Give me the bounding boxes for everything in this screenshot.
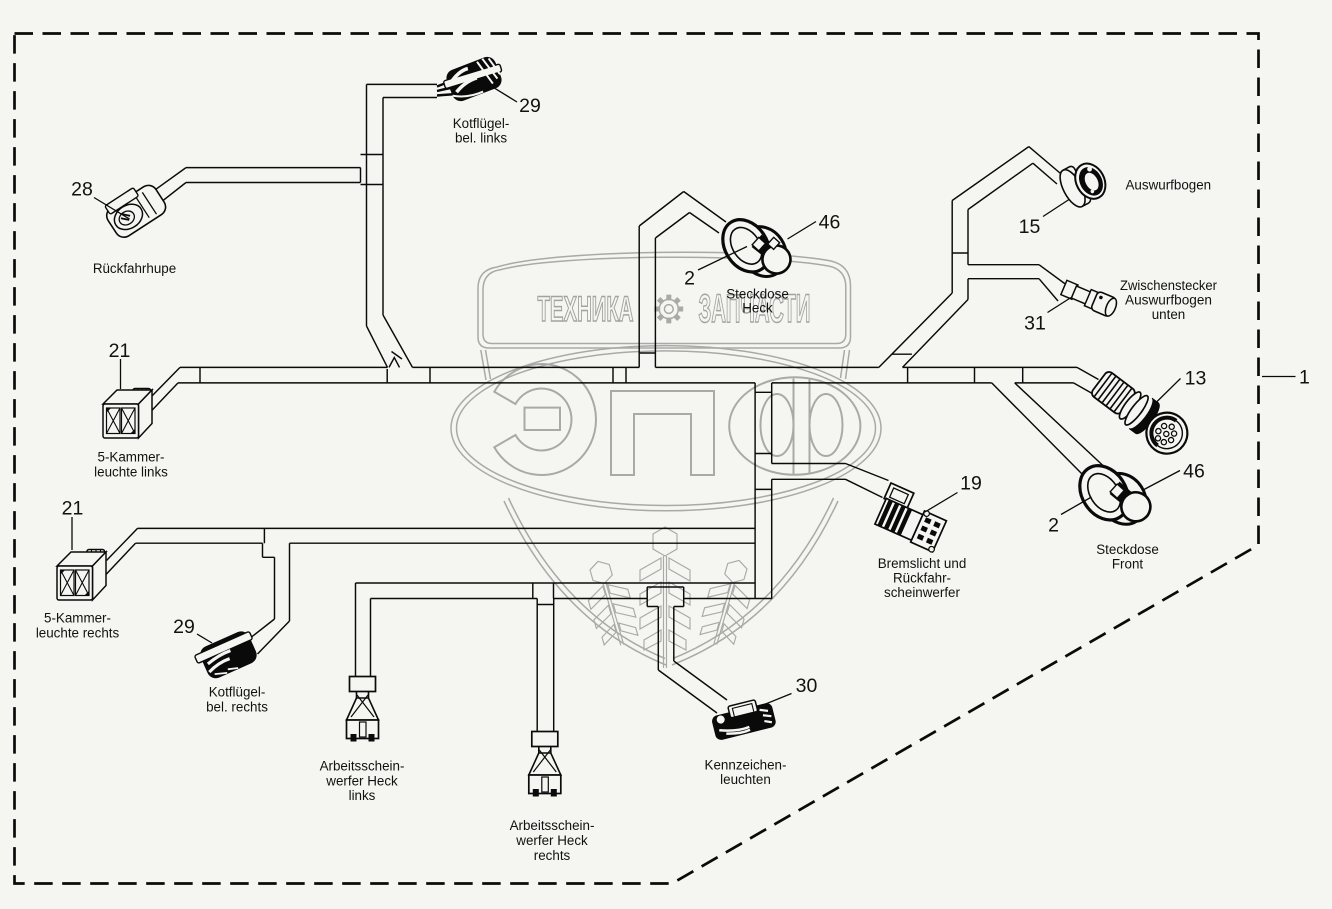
svg-text:29: 29: [519, 95, 541, 117]
svg-text:Zwischenstecker: Zwischenstecker: [1120, 278, 1218, 293]
svg-text:Rückfahrhupe: Rückfahrhupe: [93, 261, 176, 276]
svg-text:5-Kammer-: 5-Kammer-: [44, 611, 111, 626]
svg-text:5-Kammer-: 5-Kammer-: [98, 450, 165, 465]
svg-text:Steckdose: Steckdose: [726, 287, 789, 302]
svg-text:2: 2: [684, 268, 695, 290]
svg-text:31: 31: [1024, 313, 1046, 335]
svg-text:Steckdose: Steckdose: [1096, 542, 1159, 557]
svg-text:Arbeitsschein-: Arbeitsschein-: [320, 759, 405, 774]
svg-text:15: 15: [1019, 216, 1041, 238]
svg-text:46: 46: [819, 212, 841, 234]
svg-text:leuchten: leuchten: [720, 772, 771, 787]
svg-text:scheinwerfer: scheinwerfer: [884, 585, 960, 600]
svg-text:bel. rechts: bel. rechts: [206, 700, 268, 715]
svg-text:werfer Heck: werfer Heck: [515, 833, 588, 848]
svg-text:2: 2: [1048, 515, 1059, 537]
svg-text:28: 28: [71, 179, 93, 201]
svg-text:bel. links: bel. links: [455, 131, 507, 146]
svg-text:Rückfahr-: Rückfahr-: [893, 571, 951, 586]
svg-text:Bremslicht und: Bremslicht und: [878, 556, 967, 571]
svg-text:Auswurfbogen: Auswurfbogen: [1125, 293, 1212, 308]
svg-text:1: 1: [1299, 367, 1310, 389]
svg-text:13: 13: [1185, 368, 1207, 390]
svg-text:werfer Heck: werfer Heck: [325, 774, 398, 789]
svg-text:leuchte rechts: leuchte rechts: [36, 626, 120, 641]
svg-text:46: 46: [1183, 461, 1205, 483]
svg-text:29: 29: [173, 616, 195, 638]
svg-text:Auswurfbogen: Auswurfbogen: [1126, 178, 1212, 193]
svg-text:Kennzeichen-: Kennzeichen-: [705, 758, 787, 773]
svg-text:Heck: Heck: [742, 301, 773, 316]
svg-text:21: 21: [109, 340, 131, 362]
svg-text:links: links: [349, 788, 376, 803]
svg-text:Front: Front: [1112, 557, 1144, 572]
svg-text:ТЕХНИКА: ТЕХНИКА: [538, 290, 634, 329]
svg-text:21: 21: [62, 498, 84, 520]
svg-text:30: 30: [796, 675, 818, 697]
svg-text:Kotflügel-: Kotflügel-: [209, 685, 266, 700]
svg-text:Kotflügel-: Kotflügel-: [453, 116, 510, 131]
svg-text:unten: unten: [1152, 307, 1186, 322]
svg-text:leuchte links: leuchte links: [94, 465, 168, 480]
svg-text:19: 19: [960, 473, 982, 495]
svg-text:Arbeitsschein-: Arbeitsschein-: [510, 818, 595, 833]
svg-text:rechts: rechts: [534, 848, 571, 863]
